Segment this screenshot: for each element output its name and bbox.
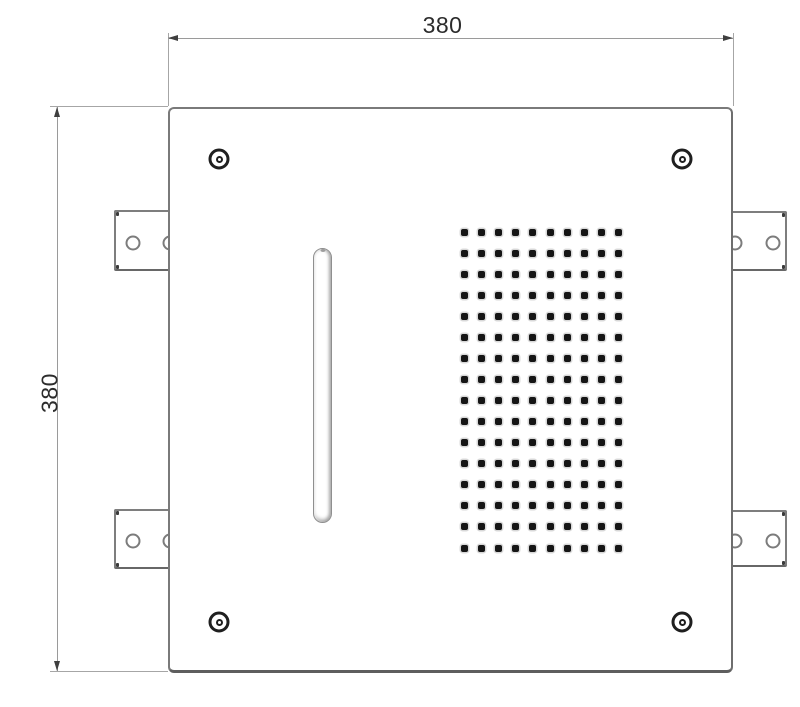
- perforation-dot: [598, 439, 605, 446]
- perforation-dot: [495, 271, 502, 278]
- top-dimension-line: [168, 38, 733, 39]
- perforation-dot: [461, 250, 468, 257]
- perforation-dot: [615, 460, 622, 467]
- perforation-dot: [461, 271, 468, 278]
- perforation-dot: [547, 229, 554, 236]
- perforation-dot: [615, 523, 622, 530]
- bracket-hole-icon: [126, 534, 141, 549]
- perforation-dot: [581, 460, 588, 467]
- perforation-dot: [547, 355, 554, 362]
- perforation-dot: [615, 439, 622, 446]
- perforation-dot: [547, 271, 554, 278]
- perforation-dot: [564, 460, 571, 467]
- arrowhead-up-icon: [54, 107, 60, 117]
- perforation-dot: [598, 376, 605, 383]
- left-dimension-label: 380: [39, 373, 62, 413]
- perforation-dot: [581, 313, 588, 320]
- perforation-dot: [512, 334, 519, 341]
- perforation-dot: [512, 523, 519, 530]
- perforation-dot: [512, 292, 519, 299]
- perforation-dot: [598, 271, 605, 278]
- perforation-dot: [529, 545, 536, 552]
- perforation-dot: [478, 229, 485, 236]
- perforation-dot: [547, 481, 554, 488]
- perforation-dot: [615, 250, 622, 257]
- perforation-dot: [581, 355, 588, 362]
- perforation-dot: [461, 334, 468, 341]
- perforation-dot: [581, 397, 588, 404]
- perforation-dot: [461, 313, 468, 320]
- perforation-dot: [512, 313, 519, 320]
- perforation-dot: [461, 460, 468, 467]
- perforation-dot: [478, 439, 485, 446]
- perforation-dot: [478, 397, 485, 404]
- perforation-dot: [512, 376, 519, 383]
- perforation-dot: [598, 397, 605, 404]
- perforation-dot: [615, 355, 622, 362]
- perforation-dot: [478, 545, 485, 552]
- perforation-dot: [529, 355, 536, 362]
- perforation-dot: [615, 334, 622, 341]
- perforation-dot: [529, 439, 536, 446]
- perforation-dot: [461, 355, 468, 362]
- perforation-dot: [478, 502, 485, 509]
- perforation-dot: [564, 439, 571, 446]
- top-dimension-extension-left: [168, 33, 169, 106]
- perforation-dot: [461, 523, 468, 530]
- perforation-dot: [547, 376, 554, 383]
- panel-outline: [168, 107, 733, 673]
- screw-hole-icon: [209, 612, 230, 633]
- perforation-dot: [547, 397, 554, 404]
- perforation-dot: [564, 313, 571, 320]
- perforation-dot: [598, 460, 605, 467]
- perforation-dot: [461, 376, 468, 383]
- screw-hole-icon: [672, 612, 693, 633]
- perforation-dot: [512, 481, 519, 488]
- perforation-dot: [615, 418, 622, 425]
- perforation-dot: [461, 418, 468, 425]
- perforation-dot: [547, 439, 554, 446]
- perforation-dot: [581, 545, 588, 552]
- perforation-dot: [564, 502, 571, 509]
- perforation-dot: [495, 334, 502, 341]
- perforation-dot: [529, 481, 536, 488]
- perforation-dot: [547, 523, 554, 530]
- perforation-dot: [529, 250, 536, 257]
- bracket-corner-tick: [116, 563, 119, 567]
- perforation-dot: [478, 250, 485, 257]
- top-dimension-label: 380: [160, 14, 725, 37]
- perforation-dot: [512, 418, 519, 425]
- screw-center-icon: [216, 619, 223, 626]
- perforation-dot: [495, 460, 502, 467]
- perforation-dot: [529, 397, 536, 404]
- perforation-dot: [615, 481, 622, 488]
- perforation-dot: [615, 397, 622, 404]
- perforation-dot: [598, 334, 605, 341]
- perforation-dot: [461, 397, 468, 404]
- perforation-dot: [547, 545, 554, 552]
- perforation-dot: [512, 502, 519, 509]
- perforation-dot: [512, 250, 519, 257]
- perforation-dot: [581, 334, 588, 341]
- bracket-hole-icon: [766, 533, 781, 548]
- screw-hole-icon: [209, 149, 230, 170]
- perforation-dot: [529, 523, 536, 530]
- perforation-dot: [581, 292, 588, 299]
- perforation-dot: [478, 460, 485, 467]
- perforation-dot: [581, 376, 588, 383]
- perforation-dot: [598, 545, 605, 552]
- perforation-dot: [581, 439, 588, 446]
- perforation-dot: [564, 292, 571, 299]
- perforation-dot: [564, 545, 571, 552]
- perforation-dot: [495, 523, 502, 530]
- perforation-dot: [529, 460, 536, 467]
- perforation-dot: [529, 313, 536, 320]
- perforation-dot: [598, 523, 605, 530]
- perforation-dot: [581, 481, 588, 488]
- perforation-dot: [598, 418, 605, 425]
- perforation-dot: [529, 271, 536, 278]
- bracket-corner-tick: [782, 561, 785, 565]
- perforation-dot: [615, 271, 622, 278]
- perforation-dot: [478, 292, 485, 299]
- perforation-dot: [564, 481, 571, 488]
- screw-center-icon: [679, 619, 686, 626]
- perforation-dot: [547, 313, 554, 320]
- perforation-dot: [478, 523, 485, 530]
- perforation-dot: [461, 481, 468, 488]
- waterfall-slot: [313, 248, 332, 523]
- perforation-dot: [495, 313, 502, 320]
- perforation-dot: [495, 418, 502, 425]
- perforation-dot: [478, 334, 485, 341]
- bracket-hole-icon: [766, 236, 781, 251]
- perforation-dot: [615, 502, 622, 509]
- perforation-dot: [461, 292, 468, 299]
- bracket-corner-tick: [782, 512, 785, 516]
- perforation-dot: [495, 292, 502, 299]
- perforation-dot: [564, 418, 571, 425]
- bracket-corner-tick: [116, 265, 119, 269]
- perforation-dot: [478, 376, 485, 383]
- perforation-dot: [615, 292, 622, 299]
- perforation-dot: [547, 292, 554, 299]
- perforation-dot: [615, 545, 622, 552]
- perforation-dot: [495, 502, 502, 509]
- perforation-dot: [598, 355, 605, 362]
- perforation-dot: [495, 397, 502, 404]
- perforation-dot: [598, 481, 605, 488]
- perforation-dot: [495, 545, 502, 552]
- perforation-dot: [598, 229, 605, 236]
- perforation-dot: [461, 502, 468, 509]
- perforation-dot: [564, 334, 571, 341]
- perforation-dot: [529, 229, 536, 236]
- bracket-corner-tick: [782, 213, 785, 217]
- perforation-dot: [564, 397, 571, 404]
- perforation-dot: [564, 523, 571, 530]
- perforation-dot: [547, 502, 554, 509]
- perforation-dot: [581, 271, 588, 278]
- perforation-dot: [598, 313, 605, 320]
- perforation-dot: [495, 481, 502, 488]
- perforation-dot: [581, 418, 588, 425]
- perforation-dot: [512, 545, 519, 552]
- bracket-corner-tick: [116, 212, 119, 216]
- perforation-dot: [461, 229, 468, 236]
- technical-drawing: 380 380: [0, 0, 800, 707]
- perforation-dot: [581, 502, 588, 509]
- perforation-dot: [529, 292, 536, 299]
- screw-center-icon: [216, 156, 223, 163]
- perforation-dot: [547, 334, 554, 341]
- perforation-dot: [478, 481, 485, 488]
- perforation-dot: [478, 355, 485, 362]
- perforation-dot: [512, 271, 519, 278]
- perforation-dot: [478, 313, 485, 320]
- perforation-dot: [615, 313, 622, 320]
- bracket-hole-icon: [126, 235, 141, 250]
- perforation-dot: [581, 523, 588, 530]
- perforation-dot: [547, 250, 554, 257]
- perforation-dot: [581, 250, 588, 257]
- perforation-dot: [529, 334, 536, 341]
- perforation-dot: [495, 355, 502, 362]
- left-dimension-extension-bottom: [50, 671, 168, 672]
- perforation-dot: [547, 460, 554, 467]
- perforation-dot: [495, 376, 502, 383]
- perforation-dot: [564, 271, 571, 278]
- perforation-dot: [495, 250, 502, 257]
- perforation-dot: [564, 355, 571, 362]
- perforation-dot: [461, 439, 468, 446]
- perforation-dot: [478, 418, 485, 425]
- perforation-dot: [512, 439, 519, 446]
- bracket-corner-tick: [782, 265, 785, 269]
- top-dimension-extension-right: [733, 33, 734, 106]
- perforation-dot: [512, 355, 519, 362]
- perforation-dot: [495, 439, 502, 446]
- arrowhead-down-icon: [54, 661, 60, 671]
- perforation-dot: [598, 250, 605, 257]
- perforation-dot: [529, 502, 536, 509]
- perforation-dot: [564, 250, 571, 257]
- perforation-dot: [461, 545, 468, 552]
- perforation-dot: [512, 397, 519, 404]
- bracket-corner-tick: [116, 511, 119, 515]
- perforation-dot: [512, 460, 519, 467]
- perforation-dot: [529, 418, 536, 425]
- perforation-dot: [495, 229, 502, 236]
- perforation-dot: [598, 292, 605, 299]
- perforation-dot: [615, 376, 622, 383]
- screw-hole-icon: [672, 149, 693, 170]
- screw-center-icon: [679, 156, 686, 163]
- perforation-dot: [564, 229, 571, 236]
- perforation-dot: [478, 271, 485, 278]
- perforation-dot: [598, 502, 605, 509]
- perforation-dot: [581, 229, 588, 236]
- perforation-dot: [615, 229, 622, 236]
- perforation-dot: [547, 418, 554, 425]
- perforation-dot: [529, 376, 536, 383]
- left-dimension-extension-top: [50, 106, 168, 107]
- perforation-dot: [564, 376, 571, 383]
- perforation-dot: [512, 229, 519, 236]
